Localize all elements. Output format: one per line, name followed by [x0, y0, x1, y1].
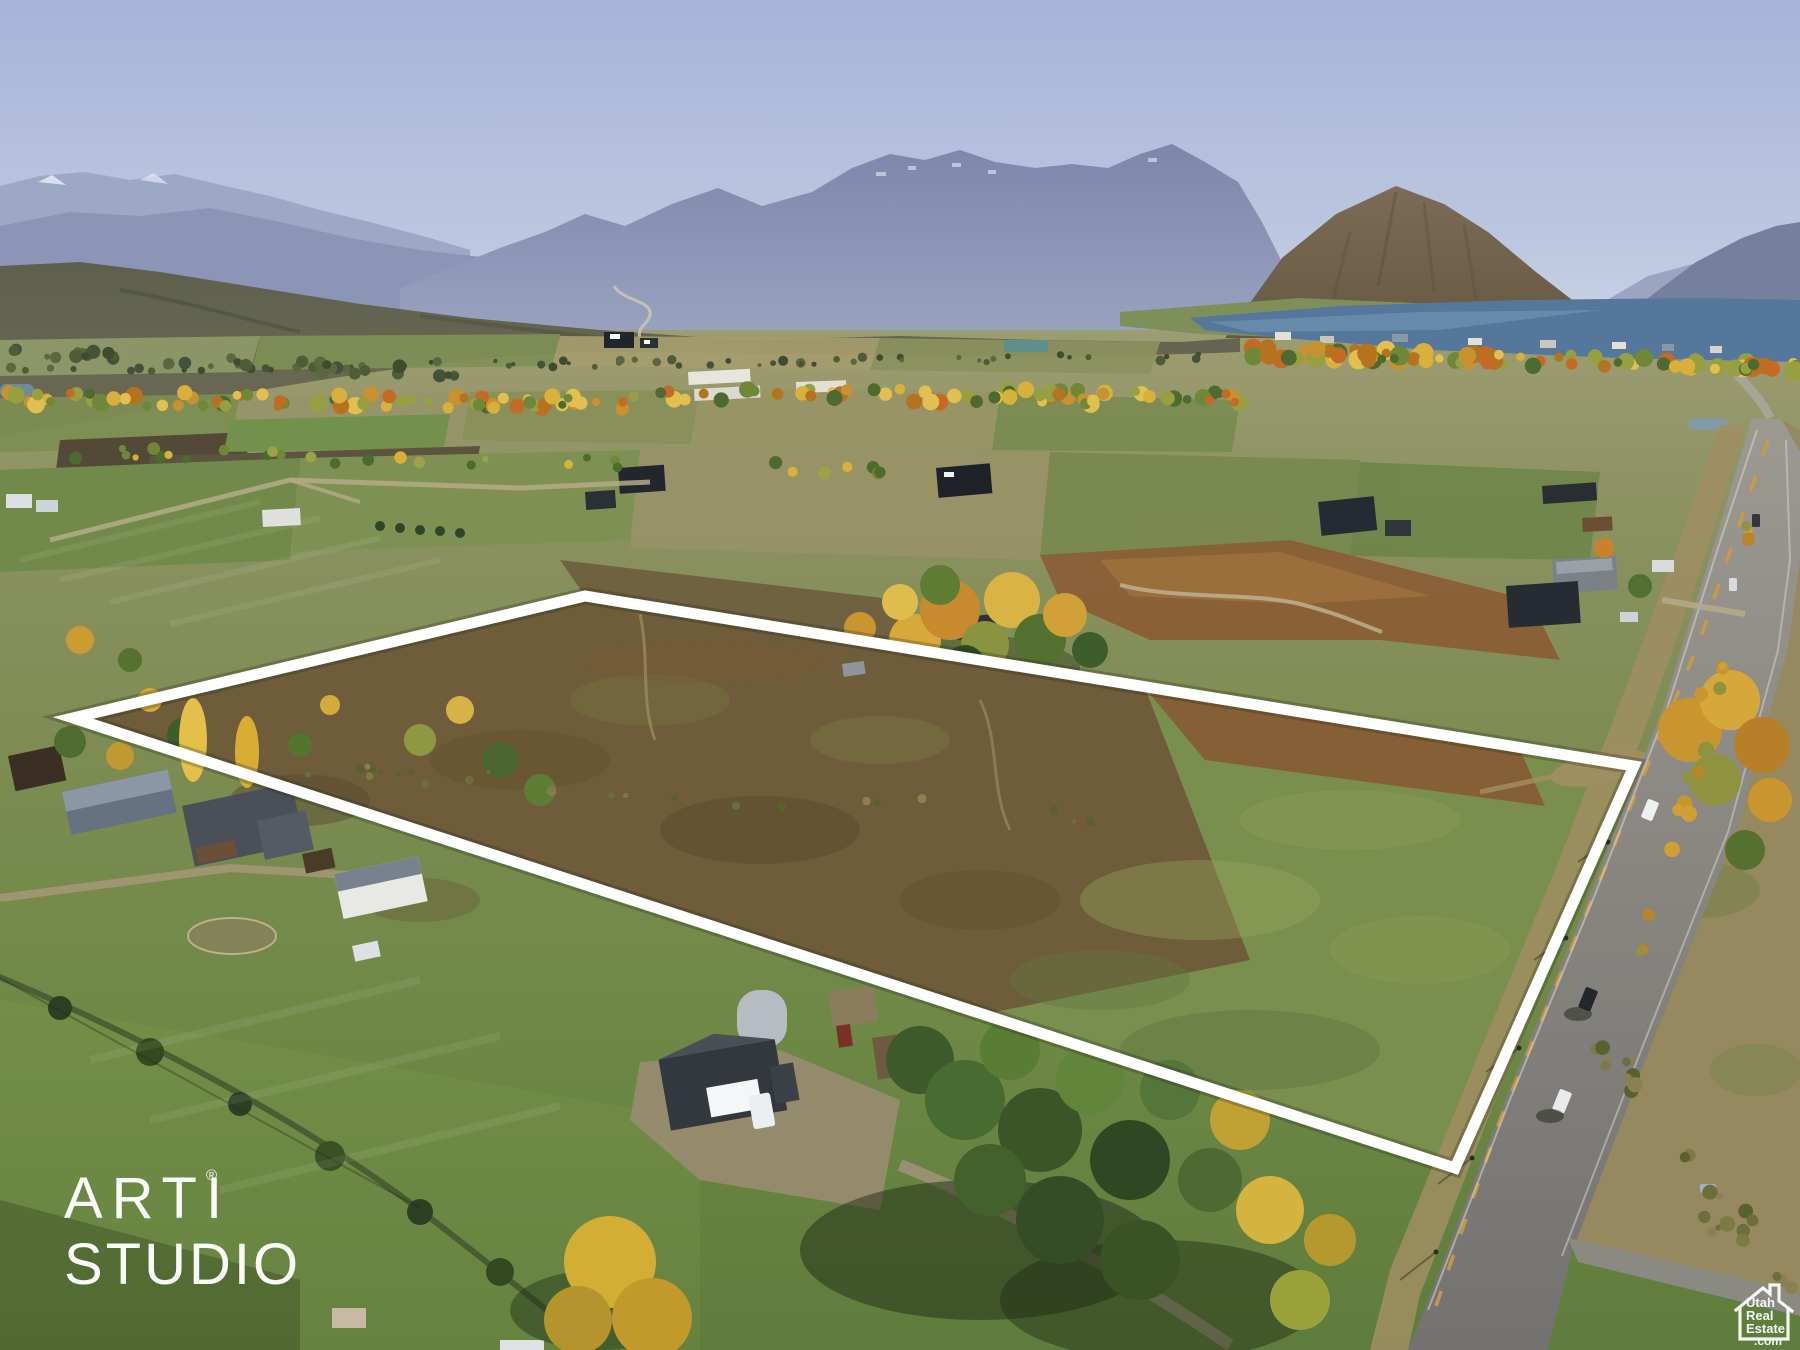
- tree: [147, 442, 160, 455]
- tree: [1699, 723, 1711, 735]
- tree: [360, 365, 371, 376]
- tree: [918, 794, 927, 803]
- tree: [443, 402, 454, 413]
- tree: [877, 354, 884, 361]
- tree: [1183, 395, 1192, 404]
- tree: [445, 371, 453, 379]
- roof-glint: [644, 340, 650, 344]
- teal-barn: [1004, 340, 1048, 352]
- studio-wordmark-line2: STUDIO: [64, 1232, 301, 1297]
- tree: [1708, 1227, 1717, 1236]
- greenhouse-roof: [500, 1340, 544, 1350]
- tree: [714, 392, 729, 407]
- tree: [493, 359, 497, 363]
- tree: [394, 451, 406, 463]
- tree: [498, 393, 509, 404]
- tree: [1642, 909, 1655, 922]
- tree: [157, 400, 168, 411]
- tree: [772, 388, 784, 400]
- roof-glint: [610, 334, 620, 339]
- tree: [1435, 354, 1443, 362]
- tree: [1357, 343, 1377, 363]
- tree: [296, 356, 308, 368]
- tree: [142, 401, 152, 411]
- tree: [676, 362, 683, 369]
- tree: [50, 352, 61, 363]
- tree: [558, 401, 566, 409]
- tree: [906, 394, 922, 410]
- tree: [66, 389, 75, 398]
- tree: [1635, 349, 1653, 367]
- tree: [1669, 360, 1681, 372]
- tree: [486, 769, 490, 773]
- tree: [397, 396, 408, 407]
- tree: [725, 358, 731, 364]
- field: [552, 336, 880, 370]
- tree: [459, 393, 469, 403]
- dark-barn: [585, 490, 616, 510]
- tree: [366, 772, 374, 780]
- tree: [1281, 350, 1297, 366]
- tree: [799, 361, 804, 366]
- tree: [922, 394, 939, 411]
- tree: [240, 359, 253, 372]
- distant-car: [1729, 578, 1737, 591]
- tree: [9, 345, 20, 356]
- tree: [1683, 772, 1695, 784]
- tree: [984, 359, 990, 365]
- tree: [309, 394, 326, 411]
- tree: [583, 454, 591, 462]
- tree: [32, 389, 44, 401]
- tree: [671, 795, 678, 802]
- tree: [574, 396, 587, 409]
- tree: [393, 359, 407, 373]
- field-bright: [224, 414, 450, 452]
- tree: [452, 373, 459, 380]
- tree: [592, 364, 598, 370]
- registered-trademark-icon: ®: [206, 1167, 217, 1184]
- tree: [1525, 358, 1541, 374]
- tree: [69, 452, 82, 465]
- dark-blue-house: [1506, 581, 1581, 628]
- tree: [874, 799, 881, 806]
- tree: [1764, 361, 1780, 377]
- tree: [46, 397, 55, 406]
- tree: [1494, 350, 1504, 360]
- tree: [506, 363, 512, 369]
- tree: [1698, 742, 1715, 759]
- tree: [509, 399, 524, 414]
- tree: [1390, 354, 1399, 363]
- brown-shed: [1582, 516, 1613, 532]
- tree: [1005, 353, 1011, 359]
- tree: [977, 358, 981, 362]
- tree: [349, 368, 361, 380]
- tree: [1378, 355, 1387, 364]
- shed: [1385, 520, 1411, 536]
- tree: [1713, 682, 1726, 695]
- tree: [732, 802, 740, 810]
- tree: [163, 358, 174, 369]
- tree: [851, 359, 857, 365]
- tree: [1606, 1056, 1612, 1062]
- tree: [102, 347, 114, 359]
- tree: [422, 780, 430, 788]
- tree: [22, 367, 29, 374]
- tree: [874, 467, 885, 478]
- tree: [1710, 364, 1720, 374]
- tree: [1554, 353, 1563, 362]
- tree: [1085, 354, 1091, 360]
- tree: [1595, 1040, 1610, 1055]
- tree: [1050, 806, 1059, 815]
- tree: [988, 391, 1000, 403]
- tree: [623, 793, 628, 798]
- tree: [1481, 356, 1494, 369]
- tree: [1672, 804, 1684, 816]
- tree: [1694, 687, 1708, 701]
- tree: [1594, 538, 1614, 558]
- tree: [655, 387, 666, 398]
- tree: [990, 356, 996, 362]
- tree: [1742, 533, 1755, 546]
- tree: [1623, 1074, 1632, 1083]
- tree: [396, 771, 401, 776]
- roof-glint: [944, 472, 954, 477]
- tree: [629, 391, 639, 401]
- tree: [770, 360, 776, 366]
- tree: [8, 387, 25, 404]
- tree: [1614, 358, 1623, 367]
- tree: [739, 381, 756, 398]
- tree: [523, 396, 536, 409]
- field: [1040, 452, 1360, 560]
- tree: [699, 389, 709, 399]
- tree: [1657, 357, 1670, 370]
- tree: [164, 451, 172, 459]
- scrub-green-patch: [1710, 1044, 1800, 1096]
- tree: [69, 349, 83, 363]
- tree: [608, 792, 615, 799]
- tree: [778, 356, 788, 366]
- tree: [6, 363, 16, 373]
- tree: [382, 390, 396, 404]
- tree: [331, 388, 347, 404]
- tree: [44, 354, 50, 360]
- tree: [1260, 346, 1278, 364]
- tree: [1192, 354, 1201, 363]
- tree: [1072, 819, 1077, 824]
- tree: [488, 402, 500, 414]
- tree: [182, 455, 190, 463]
- white-trailer: [1620, 612, 1638, 622]
- tree: [305, 771, 311, 777]
- aerial-listing-photo: ARTI ® STUDIO Utah Real Estate .com: [0, 0, 1800, 1350]
- tree: [177, 385, 192, 400]
- tree: [127, 367, 135, 375]
- tree: [842, 462, 852, 472]
- tree: [122, 451, 131, 460]
- tree: [899, 358, 904, 363]
- tree: [1002, 389, 1018, 405]
- tree: [330, 458, 341, 469]
- tree: [1736, 1234, 1750, 1248]
- tree: [788, 467, 798, 477]
- tree: [306, 452, 317, 463]
- tree: [81, 352, 89, 360]
- tan-shed: [828, 986, 879, 1028]
- tree: [274, 395, 286, 407]
- tree: [356, 765, 365, 774]
- tree: [1680, 1152, 1690, 1162]
- tree: [198, 367, 205, 374]
- tree: [1747, 1215, 1759, 1227]
- tree: [1067, 355, 1072, 360]
- tree: [1143, 390, 1156, 403]
- tree: [106, 391, 120, 405]
- tree: [1419, 354, 1434, 369]
- tree: [1161, 391, 1175, 405]
- tree: [511, 362, 515, 366]
- tree: [133, 454, 139, 460]
- tree: [1052, 388, 1065, 401]
- tree: [1742, 521, 1752, 531]
- tree: [1085, 817, 1095, 827]
- tree: [618, 397, 627, 406]
- tree: [322, 360, 331, 369]
- tree: [613, 463, 623, 473]
- tree: [895, 384, 906, 395]
- tree: [1034, 389, 1046, 401]
- tree: [1018, 382, 1035, 399]
- tree: [1664, 842, 1680, 858]
- tree: [1719, 1216, 1735, 1232]
- tree: [707, 361, 715, 369]
- tree: [173, 400, 184, 411]
- tree: [357, 397, 370, 410]
- tree: [1230, 398, 1239, 407]
- tree: [482, 456, 488, 462]
- tree: [826, 390, 842, 406]
- tree: [1087, 395, 1099, 407]
- tree: [1773, 1272, 1782, 1281]
- tree: [778, 802, 787, 811]
- tree: [1309, 341, 1326, 358]
- tree: [653, 358, 662, 367]
- dark-barn: [1542, 482, 1597, 504]
- dark-house: [1318, 496, 1377, 536]
- aerial-scene: ARTI ® STUDIO Utah Real Estate .com: [0, 0, 1800, 1350]
- tree: [868, 383, 881, 396]
- tree: [616, 356, 625, 365]
- tree: [879, 387, 892, 400]
- tree: [970, 395, 983, 408]
- tree: [559, 356, 568, 365]
- tree: [1693, 766, 1706, 779]
- tree: [1717, 1193, 1724, 1200]
- white-shed: [1652, 560, 1674, 572]
- tree: [1221, 389, 1230, 398]
- tree: [85, 388, 95, 398]
- tree: [632, 357, 638, 363]
- tree: [592, 398, 600, 406]
- tree: [465, 776, 474, 785]
- tree: [1057, 351, 1064, 358]
- tree: [362, 454, 374, 466]
- tree: [70, 366, 76, 372]
- tree: [667, 355, 676, 364]
- tree: [537, 361, 545, 369]
- tree: [148, 367, 155, 374]
- tree: [179, 357, 192, 370]
- tree: [1155, 356, 1165, 366]
- tree: [1566, 358, 1577, 369]
- vehicle-shadow: [1564, 1007, 1592, 1021]
- tree: [841, 384, 852, 395]
- tree: [1459, 347, 1476, 364]
- tree: [1785, 1281, 1798, 1294]
- tree: [818, 466, 831, 479]
- tree: [833, 356, 840, 363]
- dark-barn: [618, 465, 666, 494]
- tree: [544, 388, 560, 404]
- tree: [956, 355, 961, 360]
- tree: [365, 764, 371, 770]
- hay-pile: [332, 1308, 366, 1328]
- tree: [1703, 1185, 1718, 1200]
- tree: [267, 446, 278, 457]
- tree: [119, 445, 126, 452]
- tree: [233, 391, 242, 400]
- tree: [47, 365, 54, 372]
- tree: [1516, 353, 1524, 361]
- tree: [564, 394, 573, 403]
- house: [36, 500, 58, 512]
- tree: [120, 393, 131, 404]
- tree: [414, 457, 426, 469]
- tree: [1601, 1061, 1611, 1071]
- tree: [220, 400, 232, 412]
- tree: [256, 388, 268, 400]
- tree: [408, 769, 414, 775]
- tree: [1698, 1211, 1710, 1223]
- tree: [549, 363, 558, 372]
- tree: [219, 445, 230, 456]
- tree: [241, 389, 253, 401]
- tree: [379, 769, 384, 774]
- tree: [1718, 662, 1726, 670]
- tree: [423, 397, 432, 406]
- tree: [467, 460, 476, 469]
- distant-car: [1752, 514, 1760, 527]
- tree: [862, 797, 870, 805]
- tree: [1206, 396, 1214, 404]
- tree: [134, 364, 144, 374]
- tree: [947, 389, 962, 404]
- tree: [1598, 360, 1611, 373]
- tree: [811, 362, 816, 367]
- tree: [262, 364, 270, 372]
- tree: [1131, 387, 1140, 396]
- tree: [1622, 1057, 1631, 1066]
- tree: [433, 357, 442, 366]
- tree: [1636, 948, 1644, 956]
- tree: [208, 363, 214, 369]
- tree: [548, 785, 556, 793]
- tree: [1628, 574, 1652, 598]
- tree: [769, 456, 782, 469]
- tree: [564, 460, 573, 469]
- logo-word-com: .com: [1754, 1334, 1782, 1348]
- tree: [805, 391, 816, 402]
- tree: [198, 400, 209, 411]
- dark-house: [936, 463, 992, 498]
- tree: [757, 363, 761, 367]
- tree: [473, 399, 485, 411]
- tree: [858, 353, 867, 362]
- house: [6, 494, 32, 508]
- tree: [1748, 359, 1759, 370]
- vehicle-shadow: [1536, 1109, 1564, 1123]
- tree: [567, 361, 571, 365]
- tree: [433, 369, 446, 382]
- field: [1350, 462, 1600, 560]
